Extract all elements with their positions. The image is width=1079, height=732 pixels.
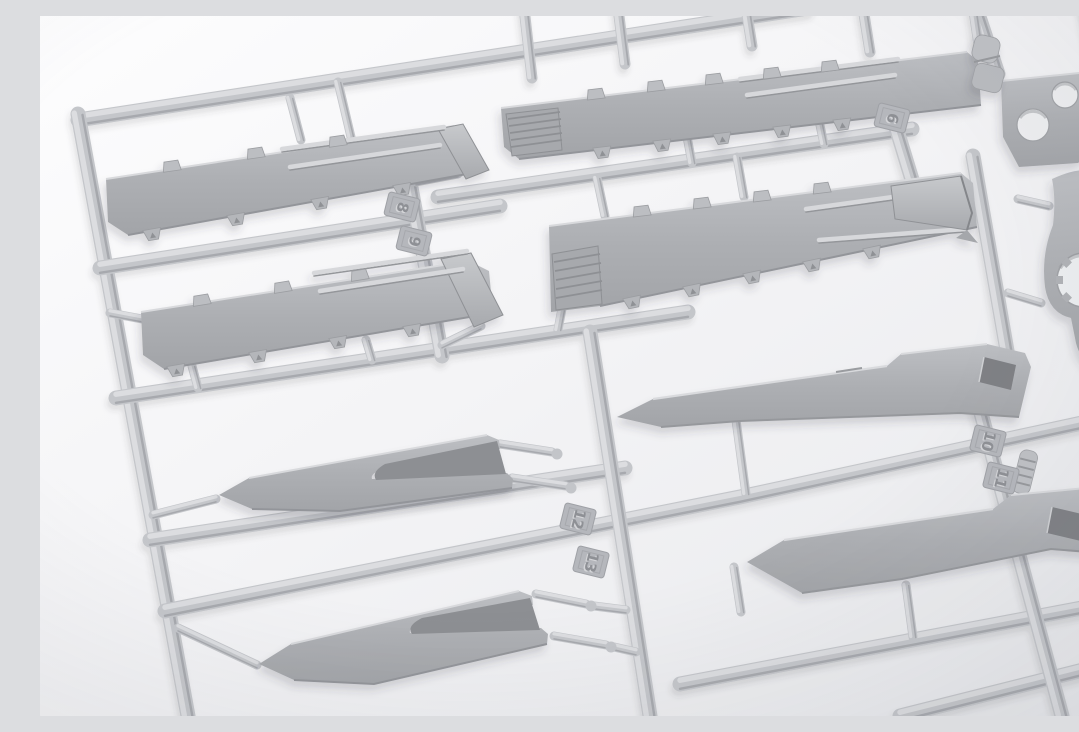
sprue-photo-svg: 8 8 9 9 6 6 10 10 11 11: [40, 16, 1079, 716]
vignette-overlay: [40, 16, 1079, 716]
sprue-photo: 8 8 9 9 6 6 10 10 11 11: [40, 16, 1079, 716]
